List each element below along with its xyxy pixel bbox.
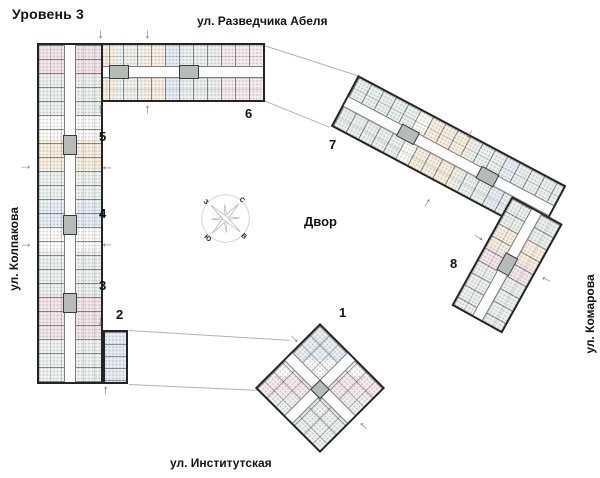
entrance-arrow-icon: ↓ — [102, 385, 109, 399]
corridor — [64, 45, 76, 382]
section-number-7: 7 — [329, 137, 336, 152]
entrance-arrow-icon: ↓ — [470, 230, 486, 243]
street-label-left: ул. Колпакова — [7, 207, 21, 291]
entrance-arrow-icon: ↓ — [97, 104, 104, 118]
lot-line — [129, 330, 290, 341]
lot-line — [261, 99, 330, 128]
entrance-arrow-icon: ↓ — [102, 242, 116, 249]
compass-north-label: С — [238, 196, 246, 205]
entrance-arrow-icon: ↓ — [286, 331, 301, 346]
stair-core — [179, 65, 199, 79]
section-number-5: 5 — [99, 129, 106, 144]
lot-line — [129, 384, 258, 391]
section-number-1: 1 — [339, 305, 346, 320]
compass-east-label: В — [240, 232, 248, 241]
entrance-arrow-icon: ↓ — [18, 164, 32, 171]
entrance-arrow-icon: ↓ — [540, 274, 556, 286]
section-number-2: 2 — [116, 307, 123, 322]
section-number-3: 3 — [99, 278, 106, 293]
entrance-arrow-icon: ↓ — [102, 165, 116, 172]
entrance-arrow-icon: ↓ — [97, 313, 104, 327]
street-label-top: ул. Разведчика Абеля — [197, 14, 328, 28]
page-title: Уровень 3 — [12, 6, 84, 22]
building-section-2[interactable] — [103, 330, 128, 384]
entrance-arrow-icon: ↓ — [18, 242, 32, 249]
corridor — [343, 96, 553, 216]
section-number-4: 4 — [99, 206, 106, 221]
entrance-arrow-icon: ↓ — [97, 26, 104, 40]
stair-core — [109, 65, 129, 79]
stair-core — [63, 215, 77, 235]
entrance-arrow-icon: ↓ — [420, 196, 433, 212]
section-number-8: 8 — [450, 256, 457, 271]
section-number-6: 6 — [245, 106, 252, 121]
stair-core — [63, 293, 77, 313]
compass-west-label: З — [202, 198, 210, 206]
stair-core — [63, 135, 77, 155]
lot-line — [258, 43, 360, 77]
street-label-right: ул. Комарова — [583, 274, 597, 353]
entrance-arrow-icon: ↓ — [357, 420, 372, 435]
compass-south-label: Ю — [203, 234, 213, 244]
building-section-8[interactable] — [451, 196, 562, 333]
entrance-arrow-icon: ↓ — [144, 26, 151, 40]
courtyard-label: Двор — [304, 214, 337, 229]
floor-plan-canvas: Уровень 3 ул. Разведчика Абеля ул. Инсти… — [0, 0, 600, 478]
building-section-3-4-5[interactable] — [37, 43, 103, 384]
street-label-bottom: ул. Институтская — [170, 456, 272, 470]
compass-rose-icon: С В Ю З — [197, 190, 254, 247]
entrance-arrow-icon: ↓ — [144, 104, 151, 118]
